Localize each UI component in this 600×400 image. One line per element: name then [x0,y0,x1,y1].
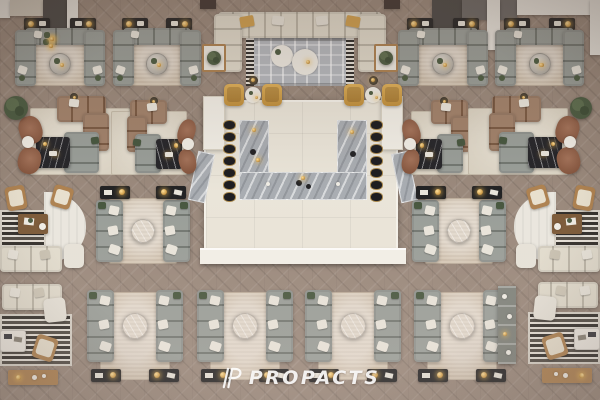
bar-stool [223,156,236,166]
book-decor [588,332,596,337]
mixed-lounge-group-l2 [104,98,196,180]
pillow [485,295,497,306]
plant-decor [44,32,49,37]
pillow [496,202,504,209]
book-decor [4,334,12,339]
bar-stool [223,192,236,202]
bar-platform [204,100,398,262]
pillow [39,249,50,259]
gold-decor [251,78,255,82]
pillow [417,30,426,38]
pillow [424,205,436,216]
facing-sofa-group-c0 [94,186,192,268]
pillow [180,202,188,209]
plant-decor [499,75,505,81]
dark-decor [306,184,311,189]
book-decor [104,190,112,195]
bar-stool [370,168,383,178]
pillow [480,225,491,236]
white-decor [292,49,318,75]
round-marble-coffee-table [340,313,366,339]
pillar-left [203,96,225,150]
tray-decor [542,151,550,156]
mixed-lounge-group-l4 [458,94,580,180]
pillow [131,30,140,38]
round-marble-coffee-table [447,219,471,243]
white-decor [554,372,558,376]
plant-decor [43,39,48,44]
pillow [317,295,329,306]
sofa-group-u-u4 [494,24,585,90]
bar-stool [370,132,383,142]
chair-seat [265,87,279,102]
plant-decor [574,75,580,81]
book-decor [171,21,178,26]
pillow [268,295,280,306]
reading-corner-group [514,186,600,274]
platform-step-ledge [200,248,406,264]
chair-seat [227,87,241,102]
bar-stool [370,180,383,190]
pillow [147,102,158,111]
plant-decor [534,58,539,63]
pillow [440,102,451,111]
wall-white-left [0,0,10,18]
book-decor [39,21,46,26]
gold-decor [539,63,543,67]
book-decor [519,21,526,26]
dark-decor [350,151,356,157]
dark-decor [250,149,256,155]
bar-stool [223,144,236,154]
wall-column-far-right [590,0,600,55]
gold-decor [174,143,178,147]
bar-stool [370,120,383,130]
sofa-group-u-u1 [14,24,106,90]
tray-decor [49,151,57,156]
book-decor [137,21,144,26]
pillow [132,138,141,146]
showroom-render: PROPACTS [0,0,600,400]
propacts-p-logo-icon [220,367,242,389]
pillow [307,292,315,299]
book-decor [422,21,429,26]
white-decor [182,138,194,150]
pillow [158,295,170,306]
pillow [414,202,422,209]
book-decor [554,21,561,26]
facing-sofa-group-d1 [85,288,185,385]
gold-decor [256,158,259,161]
pillow [283,292,291,299]
white-decor [502,294,507,299]
plant-decor [402,75,408,81]
plant-decor [95,75,101,81]
yellow-armchair-pair [224,76,282,108]
bench-corner-group [0,278,76,394]
chair-seat [385,87,399,102]
gold-decor [301,176,305,180]
book-decor [420,190,428,195]
wall-beige-left [10,0,43,16]
pillow [416,292,424,299]
pillow [69,99,80,108]
white-decor [564,136,576,148]
bar-stool [223,180,236,190]
gold-decor [503,332,507,336]
plant-decor [28,218,33,223]
book-decor [422,373,430,378]
pillow [108,205,120,216]
gold-decor [255,96,258,99]
white-decor [39,223,46,230]
pillow [391,292,399,299]
pillow [199,292,207,299]
tray-decor [425,152,433,157]
bar-stool [223,168,236,178]
pillow [513,30,522,38]
plant-leaves [15,106,25,116]
bar-stool [370,144,383,154]
pillow [107,225,118,236]
pillow [549,249,560,259]
bench-corner-group [524,276,600,394]
pillow [98,202,106,209]
brand-name: PROPACTS [249,367,381,389]
pillow [9,287,20,297]
sofa-group-u-u2 [112,24,202,90]
pillow [89,292,97,299]
white-armchair [64,244,84,268]
pillow [481,205,493,216]
gold-decor [306,60,310,64]
plant-decor [19,75,25,81]
chair-cushion [8,189,25,207]
pillow [345,15,361,28]
plant-leaves [385,57,391,63]
plant-leaves [213,57,219,63]
white-armchair [533,295,557,321]
tray-decor [165,152,173,157]
pillow [581,249,592,260]
white-armchair [516,244,536,268]
gold-decor [375,96,378,99]
plant-leaves [580,106,589,115]
pillow [555,285,566,296]
reading-corner-group [0,186,86,274]
white-decor [404,138,416,150]
plant-decor [54,58,59,63]
pillow [34,30,43,38]
plant-decor [478,75,484,81]
pillow [33,287,44,298]
book-decor [95,373,103,378]
bar-stool [370,156,383,166]
chair-cushion [576,189,593,207]
white-decor [365,87,381,103]
white-decor [32,375,37,380]
pillow [7,249,18,260]
white-decor [507,314,512,319]
pillow [426,295,438,306]
gold-decor [16,375,21,380]
white-armchair [43,297,67,323]
yellow-armchair-pair [344,76,402,108]
wall-white-right [517,0,600,15]
facing-sofa-group-c1 [410,186,508,268]
gold-decor [43,142,47,146]
dark-decor [296,180,302,186]
gold-decor [371,78,375,82]
plant-decor [437,58,442,63]
pillow [579,285,590,295]
floor-plant [570,94,592,122]
pillow [173,292,181,299]
white-decor [271,45,293,67]
white-decor [506,350,511,355]
pillow [99,295,111,306]
white-decor [42,374,46,378]
pillow [316,15,329,25]
pillow [165,205,177,216]
pillow [376,295,388,306]
round-marble-coffee-table [131,219,155,243]
round-marble-coffee-table [449,313,475,339]
facing-sofa-group-d4 [412,288,512,385]
plant-decor [275,49,281,55]
scene-layer [0,0,600,400]
pillow [498,136,507,144]
sofa-group-u-u3 [397,24,489,90]
book-decor [458,21,465,26]
round-marble-coffee-table [232,313,258,339]
pillow [164,225,175,236]
plant-decor [191,75,197,81]
white-decor [245,87,261,103]
book-decor [14,336,23,342]
chair-seat [347,87,361,102]
bar-stool [223,132,236,142]
floor-plant [4,92,28,124]
book-decor [75,21,82,26]
plant-decor [117,75,123,81]
plant-decor [151,58,156,63]
pillow [518,99,529,108]
pillow [91,136,100,144]
brand-watermark: PROPACTS [220,367,381,389]
pillow [209,295,221,306]
round-marble-coffee-table [122,313,148,339]
pillow [423,225,434,236]
book-decor [205,373,213,378]
bar-stool [370,192,383,202]
pillow [272,15,285,25]
bar-stool [223,120,236,130]
bookshelf [498,286,516,364]
